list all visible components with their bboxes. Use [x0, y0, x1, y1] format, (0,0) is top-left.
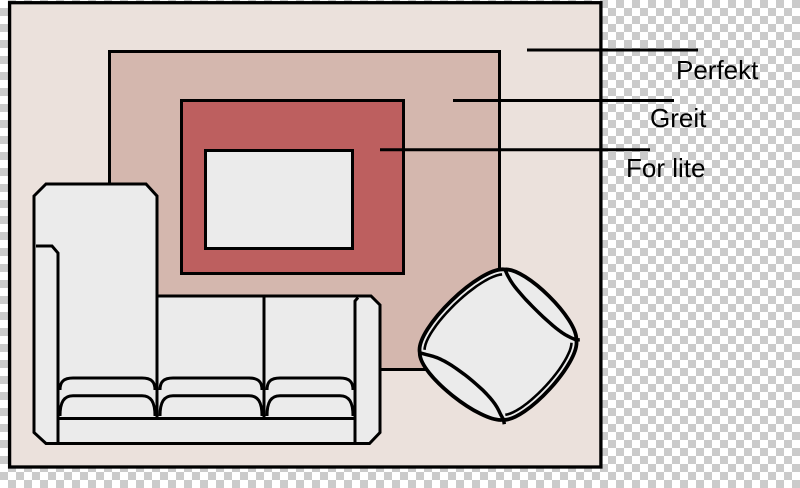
svg-text:For lite: For lite: [626, 153, 705, 183]
svg-text:Perfekt: Perfekt: [676, 55, 759, 85]
svg-text:Greit: Greit: [650, 103, 707, 133]
